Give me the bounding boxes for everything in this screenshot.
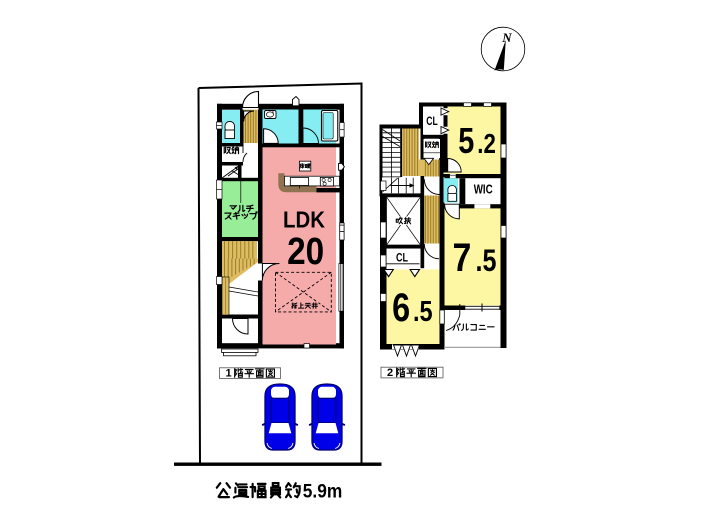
svg-text:CL: CL — [396, 251, 408, 264]
svg-text:.2: .2 — [477, 129, 496, 160]
svg-text:6: 6 — [392, 285, 410, 330]
svg-text:CL: CL — [426, 116, 438, 128]
svg-text:WIC: WIC — [474, 182, 493, 197]
svg-text:5.9m: 5.9m — [303, 481, 343, 503]
svg-text:7: 7 — [453, 234, 472, 279]
svg-text:5: 5 — [458, 120, 474, 161]
svg-text:.5: .5 — [413, 295, 433, 328]
svg-text:1: 1 — [225, 368, 231, 380]
svg-text:N: N — [501, 30, 512, 45]
svg-text:2: 2 — [387, 367, 393, 379]
svg-text:LDK: LDK — [283, 207, 325, 233]
svg-text:.5: .5 — [476, 243, 497, 278]
svg-text:20: 20 — [287, 230, 324, 272]
